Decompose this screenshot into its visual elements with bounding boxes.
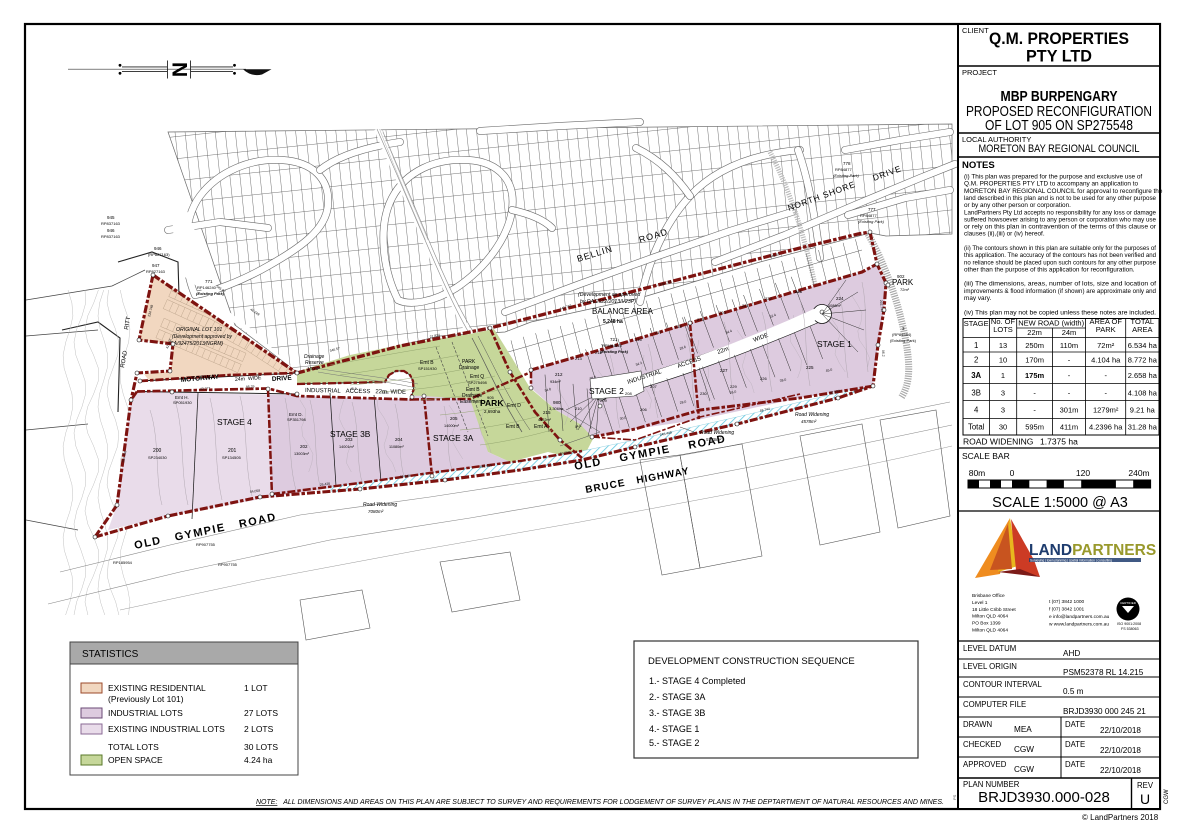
svg-text:(Development approved by: (Development approved by [172, 334, 233, 340]
svg-text:Level 1: Level 1 [972, 600, 988, 606]
svg-text:NOTES: NOTES [962, 160, 995, 171]
svg-text:215: 215 [543, 410, 551, 415]
svg-text:N: N [168, 62, 191, 77]
svg-text:STAGE 3A: STAGE 3A [433, 433, 474, 443]
svg-text:201: 201 [228, 448, 237, 454]
svg-text:13: 13 [999, 341, 1007, 350]
svg-text:208: 208 [625, 391, 632, 396]
svg-text:1086m²: 1086m² [828, 304, 842, 308]
svg-text:4.108 ha: 4.108 ha [1128, 389, 1158, 398]
svg-text:(Previously Lot 101): (Previously Lot 101) [108, 694, 184, 704]
svg-text:CONTOUR INTERVAL: CONTOUR INTERVAL [963, 680, 1043, 689]
svg-text:80m: 80m [969, 468, 986, 478]
svg-text:227: 227 [720, 368, 728, 373]
svg-text:595m: 595m [1025, 423, 1044, 432]
svg-text:NEW ROAD (width): NEW ROAD (width) [1018, 319, 1084, 328]
svg-text:FS 538063: FS 538063 [1121, 627, 1139, 631]
svg-text:4578m²: 4578m² [801, 419, 817, 424]
svg-text:110m: 110m [1060, 341, 1078, 350]
svg-text:CGW: CGW [1014, 745, 1034, 754]
svg-text:Road Widening: Road Widening [700, 430, 734, 436]
svg-text:DA/92475/2013/NGRM): DA/92475/2013/NGRM) [170, 341, 223, 347]
svg-text:4.104 ha: 4.104 ha [1091, 356, 1121, 365]
svg-text:11080m²: 11080m² [389, 445, 404, 449]
svg-text:other than the purpose of thi: other than the purpose of this applicati… [964, 266, 1135, 273]
svg-text:2: 2 [974, 356, 978, 365]
svg-text:no reliance should be placed: no reliance should be placed upon such c… [964, 259, 1156, 266]
svg-text:4.- STAGE 1: 4.- STAGE 1 [649, 724, 699, 734]
svg-text:1: 1 [1001, 371, 1005, 380]
svg-text:200: 200 [153, 448, 162, 454]
svg-text:5776m²: 5776m² [706, 437, 722, 442]
svg-text:8.772 ha: 8.772 ha [1128, 356, 1158, 365]
svg-text:1: 1 [974, 341, 978, 350]
svg-text:Road Widening: Road Widening [363, 502, 397, 508]
svg-text:DRIVE: DRIVE [272, 375, 293, 383]
svg-text:2.- STAGE 3A: 2.- STAGE 3A [649, 692, 705, 702]
svg-text:72m²: 72m² [1097, 341, 1115, 350]
svg-text:STAGE 2: STAGE 2 [589, 386, 624, 396]
svg-text:(Existing Park): (Existing Park) [196, 291, 225, 296]
svg-text:RPM846: RPM846 [602, 343, 618, 348]
svg-text:14001m²: 14001m² [339, 445, 355, 449]
svg-text:(iv) This plan may not be copi: (iv) This plan may not be copied unless … [964, 309, 1156, 316]
svg-text:LandPartners Pty Ltd accepts n: LandPartners Pty Ltd accepts no responsi… [964, 209, 1156, 216]
svg-text:AHD: AHD [1063, 649, 1080, 658]
svg-text:LANDPARTNERS: LANDPARTNERS [1029, 542, 1156, 559]
svg-text:STAGE: STAGE [964, 319, 989, 328]
svg-text:STATISTICS: STATISTICS [82, 649, 139, 660]
svg-text:Total: Total [968, 423, 985, 432]
svg-text:LOTS: LOTS [993, 325, 1013, 334]
svg-text:RP84877: RP84877 [860, 213, 877, 218]
svg-text:PTY LTD: PTY LTD [1026, 47, 1092, 66]
svg-text:EXISTING INDUSTRIAL LOTS: EXISTING INDUSTRIAL LOTS [108, 724, 225, 734]
svg-text:(Existing Park): (Existing Park) [858, 219, 885, 224]
svg-text:96.2: 96.2 [881, 350, 885, 357]
svg-text:PS: PS [952, 794, 957, 800]
svg-text:213: 213 [575, 356, 582, 361]
svg-text:217: 217 [655, 330, 662, 335]
svg-text:230: 230 [700, 391, 707, 396]
svg-text:SP151930: SP151930 [418, 366, 437, 371]
svg-text:PO Box 1399: PO Box 1399 [972, 621, 1001, 627]
svg-text:CGW: CGW [1014, 765, 1034, 774]
svg-text:72m²: 72m² [900, 287, 910, 292]
svg-text:t (07) 3842 1000: t (07) 3842 1000 [1049, 599, 1085, 605]
svg-text:22/10/2018: 22/10/2018 [1100, 766, 1141, 775]
svg-text:(RP827163): (RP827163) [148, 252, 170, 257]
svg-text:RP146240: RP146240 [197, 285, 217, 290]
svg-text:0.5 m: 0.5 m [1063, 687, 1084, 696]
svg-text:411m: 411m [1060, 423, 1078, 432]
svg-text:225: 225 [806, 365, 814, 370]
svg-text:2.658 ha: 2.658 ha [1128, 371, 1158, 380]
svg-text:4.24 ha: 4.24 ha [244, 755, 273, 765]
svg-text:land described in this plan an: land described in this plan and is not t… [964, 195, 1156, 202]
svg-text:7080m²: 7080m² [368, 509, 384, 514]
svg-text:OPEN SPACE: OPEN SPACE [108, 755, 163, 765]
svg-text:205: 205 [450, 416, 458, 421]
svg-text:223: 223 [795, 289, 802, 294]
svg-text:(ii) The contours shown in thi: (ii) The contours shown in this plan are… [964, 245, 1156, 252]
svg-text:212: 212 [555, 372, 563, 377]
svg-text:4.2396 ha: 4.2396 ha [1089, 423, 1123, 432]
svg-text:204: 204 [395, 437, 403, 442]
svg-text:14000m²: 14000m² [444, 424, 460, 428]
svg-text:222: 222 [765, 296, 772, 301]
svg-text:Surveying | town planning | sp: Surveying | town planning | spatial info… [1030, 559, 1112, 563]
svg-text:170m: 170m [1025, 356, 1044, 365]
svg-text:203: 203 [345, 437, 353, 442]
svg-text:Q.M. PROPERTIES PTY LTD to acc: Q.M. PROPERTIES PTY LTD to accompany an … [964, 181, 1138, 188]
svg-text:may vary.: may vary. [964, 295, 991, 302]
svg-text:Emt D: Emt D [507, 403, 521, 409]
svg-text:221: 221 [742, 303, 749, 308]
svg-text:947: 947 [152, 263, 160, 268]
svg-text:f (07) 3842 1001: f (07) 3842 1001 [1049, 607, 1085, 613]
svg-text:43.277: 43.277 [200, 386, 211, 391]
svg-text:ROAD WIDENING: ROAD WIDENING [963, 437, 1033, 447]
svg-text:226: 226 [760, 376, 767, 381]
svg-text:934m²: 934m² [550, 380, 561, 384]
svg-text:778: 778 [843, 161, 851, 166]
svg-text:945: 945 [107, 215, 115, 220]
svg-text:ORIGINAL LOT 101: ORIGINAL LOT 101 [176, 327, 222, 333]
svg-text:Brisbane Office: Brisbane Office [972, 593, 1005, 599]
svg-text:SP234030: SP234030 [148, 455, 167, 460]
svg-text:Drainage: Drainage [459, 365, 480, 371]
svg-text:95.29: 95.29 [246, 385, 255, 389]
svg-text:MORETON BAY REGIONAL COUNCIL: MORETON BAY REGIONAL COUNCIL [979, 143, 1140, 155]
svg-text:30 LOTS: 30 LOTS [244, 742, 278, 752]
svg-text:946: 946 [154, 246, 162, 251]
svg-text:SCALE 1:5000 @ A3: SCALE 1:5000 @ A3 [992, 495, 1128, 511]
svg-text:SP275498: SP275498 [468, 380, 487, 385]
svg-text:777: 777 [868, 207, 876, 212]
svg-text:Emt B: Emt B [506, 424, 520, 430]
svg-text:e info@landpartners.com.au: e info@landpartners.com.au [1049, 614, 1110, 620]
svg-text:MORETON BAY REGIONAL COUNCIL f: MORETON BAY REGIONAL COUNCIL for approva… [964, 188, 1163, 195]
svg-text:30: 30 [999, 423, 1007, 432]
svg-text:218: 218 [675, 324, 682, 329]
svg-text:Road Widening: Road Widening [795, 412, 829, 418]
svg-text:PARK: PARK [480, 398, 504, 408]
svg-text:220: 220 [719, 310, 726, 315]
svg-text:w www.landpartners.com.au: w www.landpartners.com.au [1049, 622, 1109, 628]
svg-text:PSM52378 RL 14.215: PSM52378 RL 14.215 [1063, 668, 1144, 677]
svg-text:301m: 301m [1060, 406, 1079, 415]
svg-text:202: 202 [300, 444, 308, 449]
svg-text:1279m²: 1279m² [1093, 406, 1119, 415]
svg-text:22/10/2018: 22/10/2018 [1100, 746, 1141, 755]
svg-text:clauses (ii),(iii) or (iv) he: clauses (ii),(iii) or (iv) hereof. [964, 231, 1045, 238]
svg-text:13003m²: 13003m² [294, 452, 310, 456]
svg-text:DATE: DATE [1065, 760, 1085, 769]
svg-text:6.534 ha: 6.534 ha [1128, 341, 1158, 350]
svg-text:2 LOTS: 2 LOTS [244, 724, 274, 734]
svg-text:DEVELOPMENT CONSTRUCTION SEQUE: DEVELOPMENT CONSTRUCTION SEQUENCE [648, 656, 855, 667]
svg-text:NOTE: ALL DIMENSIONS AND ARE: NOTE: ALL DIMENSIONS AND AREAS ON THIS P… [256, 799, 944, 806]
svg-text:DRAWN: DRAWN [963, 720, 992, 729]
svg-text:RP84877: RP84877 [835, 167, 852, 172]
svg-text:Emt A: Emt A [534, 424, 548, 430]
svg-text:BRJD3930.000-028: BRJD3930.000-028 [978, 789, 1110, 806]
svg-text:1 LOT: 1 LOT [244, 683, 268, 693]
svg-text:or by any other person or corp: or by any other person or corporation. [964, 202, 1071, 209]
svg-text:PLAN NUMBER: PLAN NUMBER [963, 780, 1020, 789]
svg-text:946: 946 [107, 228, 115, 233]
svg-text:(Development as approved: (Development as approved [578, 292, 641, 298]
svg-text:© LandPartners 2018: © LandPartners 2018 [1082, 813, 1159, 822]
svg-text:SP051930: SP051930 [173, 400, 192, 405]
svg-text:RP185954: RP185954 [113, 560, 133, 565]
svg-text:5.- STAGE 2: 5.- STAGE 2 [649, 738, 699, 748]
svg-text:Milton QLD 4064: Milton QLD 4064 [972, 614, 1008, 620]
svg-text:SP134505: SP134505 [222, 455, 241, 460]
svg-text:REV: REV [1137, 781, 1154, 790]
svg-text:CERTIFIED: CERTIFIED [1120, 601, 1137, 605]
svg-text:10: 10 [999, 356, 1007, 365]
svg-text:Milton QLD 4064: Milton QLD 4064 [972, 628, 1008, 634]
svg-text:SP351798: SP351798 [287, 417, 306, 422]
svg-text:BRJD3930 000 245 21: BRJD3930 000 245 21 [1063, 707, 1146, 716]
svg-text:CLIENT: CLIENT [962, 26, 989, 35]
svg-text:STAGE 4: STAGE 4 [217, 417, 252, 427]
svg-text:210: 210 [575, 406, 582, 411]
svg-text:2,693ha: 2,693ha [484, 409, 501, 414]
svg-text:PARK: PARK [1096, 325, 1116, 334]
svg-text:3A: 3A [971, 371, 981, 380]
svg-text:MBP BURPENGARY: MBP BURPENGARY [1001, 89, 1118, 105]
svg-text:150m²: 150m² [307, 366, 320, 371]
svg-text:this application. The accuracy: this application. The accuracy of the co… [964, 252, 1156, 259]
svg-text:3.- STAGE 3B: 3.- STAGE 3B [649, 708, 705, 718]
svg-text:(Existing Park): (Existing Park) [833, 173, 860, 178]
svg-text:CHECKED: CHECKED [963, 740, 1001, 749]
svg-text:DATE: DATE [1065, 720, 1085, 729]
svg-text:OF LOT 905 ON SP275548: OF LOT 905 ON SP275548 [985, 118, 1133, 134]
svg-text:Q.M. PROPERTIES: Q.M. PROPERTIES [989, 29, 1129, 48]
svg-text:3: 3 [1001, 389, 1005, 398]
svg-text:STAGE 1: STAGE 1 [817, 339, 852, 349]
svg-text:PARK: PARK [892, 278, 914, 287]
svg-text:MEA: MEA [1014, 725, 1032, 734]
svg-text:5,248 ha: 5,248 ha [603, 319, 623, 325]
svg-text:771: 771 [205, 279, 213, 284]
svg-text:RP907755: RP907755 [218, 562, 238, 567]
svg-text:RP827163: RP827163 [146, 269, 166, 274]
svg-text:ISO 9001:2008: ISO 9001:2008 [1117, 622, 1141, 626]
svg-text:224: 224 [836, 296, 844, 301]
svg-text:240m: 240m [1128, 468, 1149, 478]
svg-text:22/10/2018: 22/10/2018 [1100, 726, 1141, 735]
svg-text:improvements & flood informati: improvements & flood information (if sho… [964, 288, 1156, 295]
svg-text:229: 229 [730, 384, 737, 389]
svg-text:27 LOTS: 27 LOTS [244, 708, 278, 718]
svg-text:4822m²: 4822m² [538, 418, 552, 422]
svg-text:by DA/2922/2013/V23P): by DA/2922/2013/V23P) [580, 299, 636, 305]
svg-text:1.7375 ha: 1.7375 ha [1040, 437, 1078, 447]
svg-text:(Existing Park): (Existing Park) [600, 349, 629, 354]
svg-text:(iii) The dimensions, areas, n: (iii) The dimensions, areas, number of l… [964, 281, 1156, 288]
svg-text:0: 0 [1010, 468, 1015, 478]
svg-text:LEVEL DATUM: LEVEL DATUM [963, 644, 1016, 653]
svg-text:DATE: DATE [1065, 740, 1085, 749]
svg-text:RP837163: RP837163 [101, 234, 121, 239]
svg-text:3,306ha: 3,306ha [549, 406, 564, 411]
svg-text:206: 206 [640, 407, 647, 412]
svg-text:1.- STAGE 4 Completed: 1.- STAGE 4 Completed [649, 676, 745, 686]
svg-text:(RP84584): (RP84584) [892, 332, 912, 337]
svg-text:(i) This plan was prepared for: (i) This plan was prepared for the purpo… [964, 174, 1142, 181]
svg-text:(Existing Park): (Existing Park) [890, 338, 917, 343]
svg-text:31.28 ha: 31.28 ha [1128, 423, 1158, 432]
svg-text:U: U [1140, 791, 1150, 807]
svg-text:250m: 250m [1025, 341, 1044, 350]
svg-text:PROJECT: PROJECT [962, 68, 997, 77]
svg-text:LEVEL ORIGIN: LEVEL ORIGIN [963, 662, 1017, 671]
svg-text:721: 721 [610, 337, 618, 342]
svg-text:COMPUTER FILE: COMPUTER FILE [963, 700, 1026, 709]
svg-text:4: 4 [974, 406, 979, 415]
svg-text:AREA: AREA [1132, 325, 1152, 334]
svg-text:suffered howsoever arising to: suffered howsoever arising to any person… [964, 216, 1156, 223]
svg-text:3: 3 [1001, 406, 1005, 415]
svg-text:Easement: Easement [460, 399, 483, 405]
svg-text:18 Little Cribb Street: 18 Little Cribb Street [972, 607, 1016, 613]
svg-text:175m: 175m [1025, 371, 1045, 380]
svg-text:RP907755: RP907755 [196, 542, 216, 547]
svg-text:120: 120 [1076, 468, 1090, 478]
svg-text:INDUSTRIAL LOTS: INDUSTRIAL LOTS [108, 708, 183, 718]
svg-text:216: 216 [635, 337, 642, 342]
svg-text:BALANCE AREA: BALANCE AREA [592, 307, 654, 316]
svg-text:22m: 22m [1027, 328, 1042, 337]
svg-text:219: 219 [697, 317, 704, 322]
svg-text:or rely on this plan in contr: or rely on this plan in contravention of… [964, 224, 1157, 231]
svg-text:EXISTING RESIDENTIAL: EXISTING RESIDENTIAL [108, 683, 206, 693]
svg-text:TOTAL LOTS: TOTAL LOTS [108, 742, 159, 752]
svg-text:CGW: CGW [1164, 789, 1170, 804]
svg-text:3B: 3B [971, 389, 981, 398]
svg-text:APPROVED: APPROVED [963, 760, 1007, 769]
svg-text:207: 207 [650, 384, 657, 389]
svg-text:9.21 ha: 9.21 ha [1130, 406, 1156, 415]
svg-text:980: 980 [553, 400, 561, 405]
svg-text:RP837163: RP837163 [101, 221, 121, 226]
svg-text:SCALE BAR: SCALE BAR [962, 451, 1010, 461]
svg-text:209: 209 [600, 398, 607, 403]
svg-text:24m: 24m [1062, 328, 1077, 337]
